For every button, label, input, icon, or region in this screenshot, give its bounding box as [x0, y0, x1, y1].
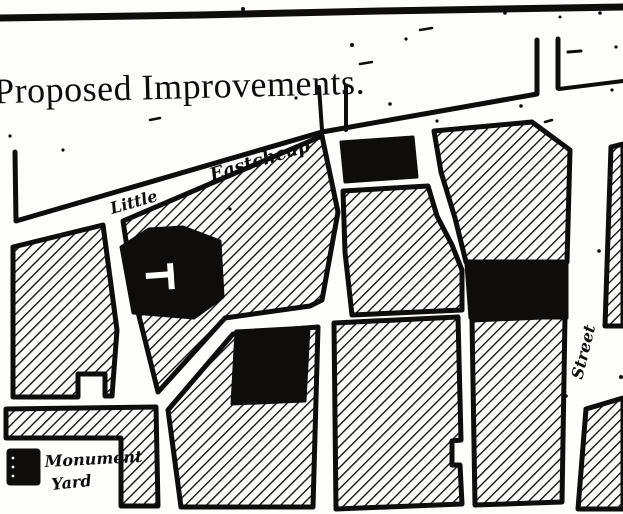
city-block-east-large	[434, 122, 570, 262]
building-north-center	[341, 137, 417, 182]
map-title: Proposed Improvements.	[0, 62, 365, 112]
top-right-tick-mark	[568, 51, 581, 52]
city-block-far-right	[605, 144, 623, 326]
map-canvas: Proposed Improvements. Little	[0, 0, 623, 514]
legend-swatch-pinhole	[12, 475, 15, 478]
map-plate: Proposed Improvements. Little	[0, 0, 623, 514]
city-block-bottom-right-corner	[578, 398, 623, 509]
legend-swatch-pinhole	[12, 466, 15, 469]
building-east-band	[466, 262, 567, 318]
building-center-square	[232, 327, 309, 404]
city-block-south-east	[472, 316, 565, 505]
city-block-west	[13, 225, 117, 397]
street-line-east-continuation	[559, 81, 623, 89]
legend-label-line2: Yard	[50, 471, 92, 494]
street-label-vertical-street: Street	[567, 322, 599, 381]
city-block-center-east	[343, 186, 462, 315]
legend-swatch-pinhole	[12, 457, 15, 460]
plate-top-border	[0, 7, 623, 18]
city-block-south-middle	[334, 317, 462, 509]
